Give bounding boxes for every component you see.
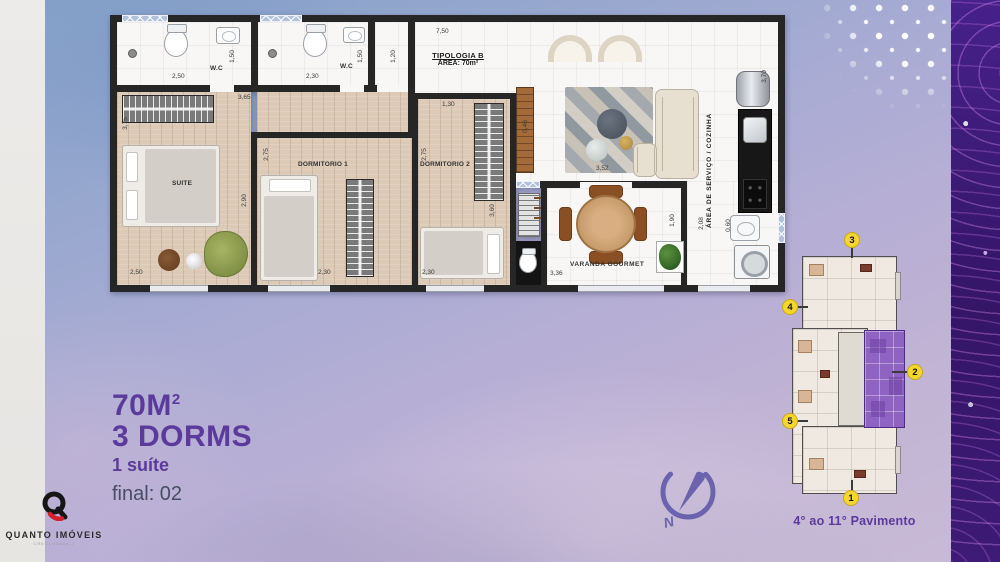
dimension-label: 2,90 — [241, 194, 248, 207]
right-decor-band — [951, 0, 1000, 562]
headline-area: 70M2 — [112, 390, 252, 421]
dimension-label: 3,75 — [122, 117, 129, 130]
floor-plan: TIPOLOGIA B ÁREA: 70m² SUITE DORMITORIO … — [110, 15, 785, 292]
dimension-label: 1,50 — [229, 50, 236, 63]
dimension-label: 1,90 — [669, 214, 676, 227]
dimension-label: 0,60 — [725, 219, 732, 232]
dimension-label: 2,30 — [422, 269, 435, 276]
flyer-canvas: TIPOLOGIA B ÁREA: 70m² SUITE DORMITORIO … — [0, 0, 1000, 562]
unit-number-badge: 5 — [782, 413, 798, 429]
logo-name: QUANTO IMÓVEIS — [4, 530, 104, 540]
logo-q-icon — [39, 490, 69, 523]
dimension-label: 2,75 — [263, 148, 270, 161]
dimension-label: 2,50 — [172, 73, 185, 80]
unit-number-badge: 4 — [782, 299, 798, 315]
unit-number-badge: 1 — [843, 490, 859, 506]
headline-final: final: 02 — [112, 483, 252, 506]
headline-dorms: 3 DORMS — [112, 421, 252, 452]
brand-logo: QUANTO IMÓVEIS CRECI 23884-J — [4, 490, 104, 546]
dimension-label: 2,30 — [318, 269, 331, 276]
unit-badge-layer: 34251 — [782, 230, 927, 542]
dimension-label: 3,70 — [761, 70, 768, 83]
dimension-label: 2,30 — [306, 73, 319, 80]
dimension-label: 2,75 — [421, 148, 428, 161]
dimension-label: 1,20 — [390, 50, 397, 63]
dimension-layer: 2,501,502,301,501,207,503,653,752,902,50… — [110, 15, 785, 292]
headline-suite: 1 suíte — [112, 455, 252, 476]
dimension-label: 3,60 — [489, 204, 496, 217]
dimension-label: 1,50 — [357, 50, 364, 63]
dimension-label: 3,52 — [596, 165, 609, 172]
keyplan-caption: 4° ao 11° Pavimento — [782, 514, 927, 528]
dimension-label: 2,08 — [698, 217, 705, 230]
dimension-label: 3,65 — [238, 94, 251, 101]
logo-subtitle: CRECI 23884-J — [4, 541, 104, 546]
dots-pattern — [810, 0, 955, 167]
keyplan: 34251 4° ao 11° Pavimento — [782, 230, 927, 542]
dimension-label: 0,46 — [522, 120, 529, 133]
dimension-label: 1,30 — [442, 101, 455, 108]
unit-number-badge: 3 — [844, 232, 860, 248]
dimension-label: 7,50 — [436, 28, 449, 35]
headline-block: 70M2 3 DORMS 1 suíte final: 02 — [112, 390, 252, 506]
area-exponent: 2 — [172, 391, 181, 408]
north-compass-icon: N — [648, 450, 728, 542]
unit-number-badge: 2 — [907, 364, 923, 380]
dimension-label: 3,36 — [550, 270, 563, 277]
dimension-label: 2,50 — [130, 269, 143, 276]
area-value: 70M — [112, 389, 172, 422]
left-gray-band — [0, 0, 45, 562]
